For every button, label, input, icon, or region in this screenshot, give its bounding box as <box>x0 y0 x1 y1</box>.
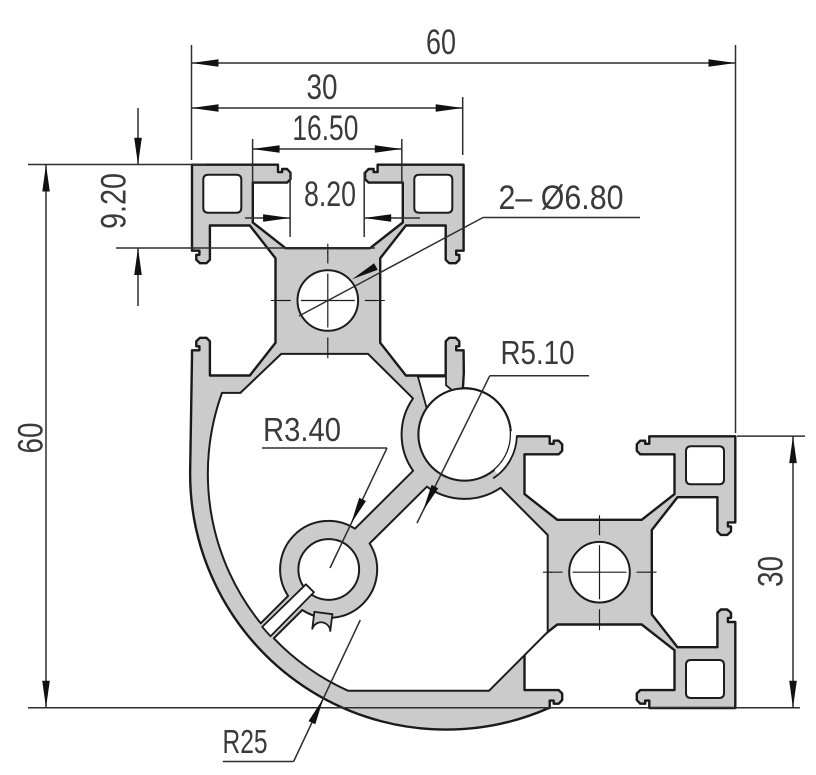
svg-text:8.20: 8.20 <box>304 175 356 214</box>
svg-text:60: 60 <box>426 23 456 62</box>
svg-text:16.50: 16.50 <box>292 109 358 148</box>
svg-text:9.20: 9.20 <box>95 173 134 229</box>
svg-text:60: 60 <box>12 423 51 454</box>
svg-text:R25: R25 <box>223 723 268 760</box>
svg-text:30: 30 <box>307 68 338 107</box>
svg-text:30: 30 <box>752 556 791 587</box>
svg-text:2– Ø6.80: 2– Ø6.80 <box>499 179 624 217</box>
svg-text:R3.40: R3.40 <box>263 411 341 448</box>
svg-text:R5.10: R5.10 <box>501 334 575 371</box>
